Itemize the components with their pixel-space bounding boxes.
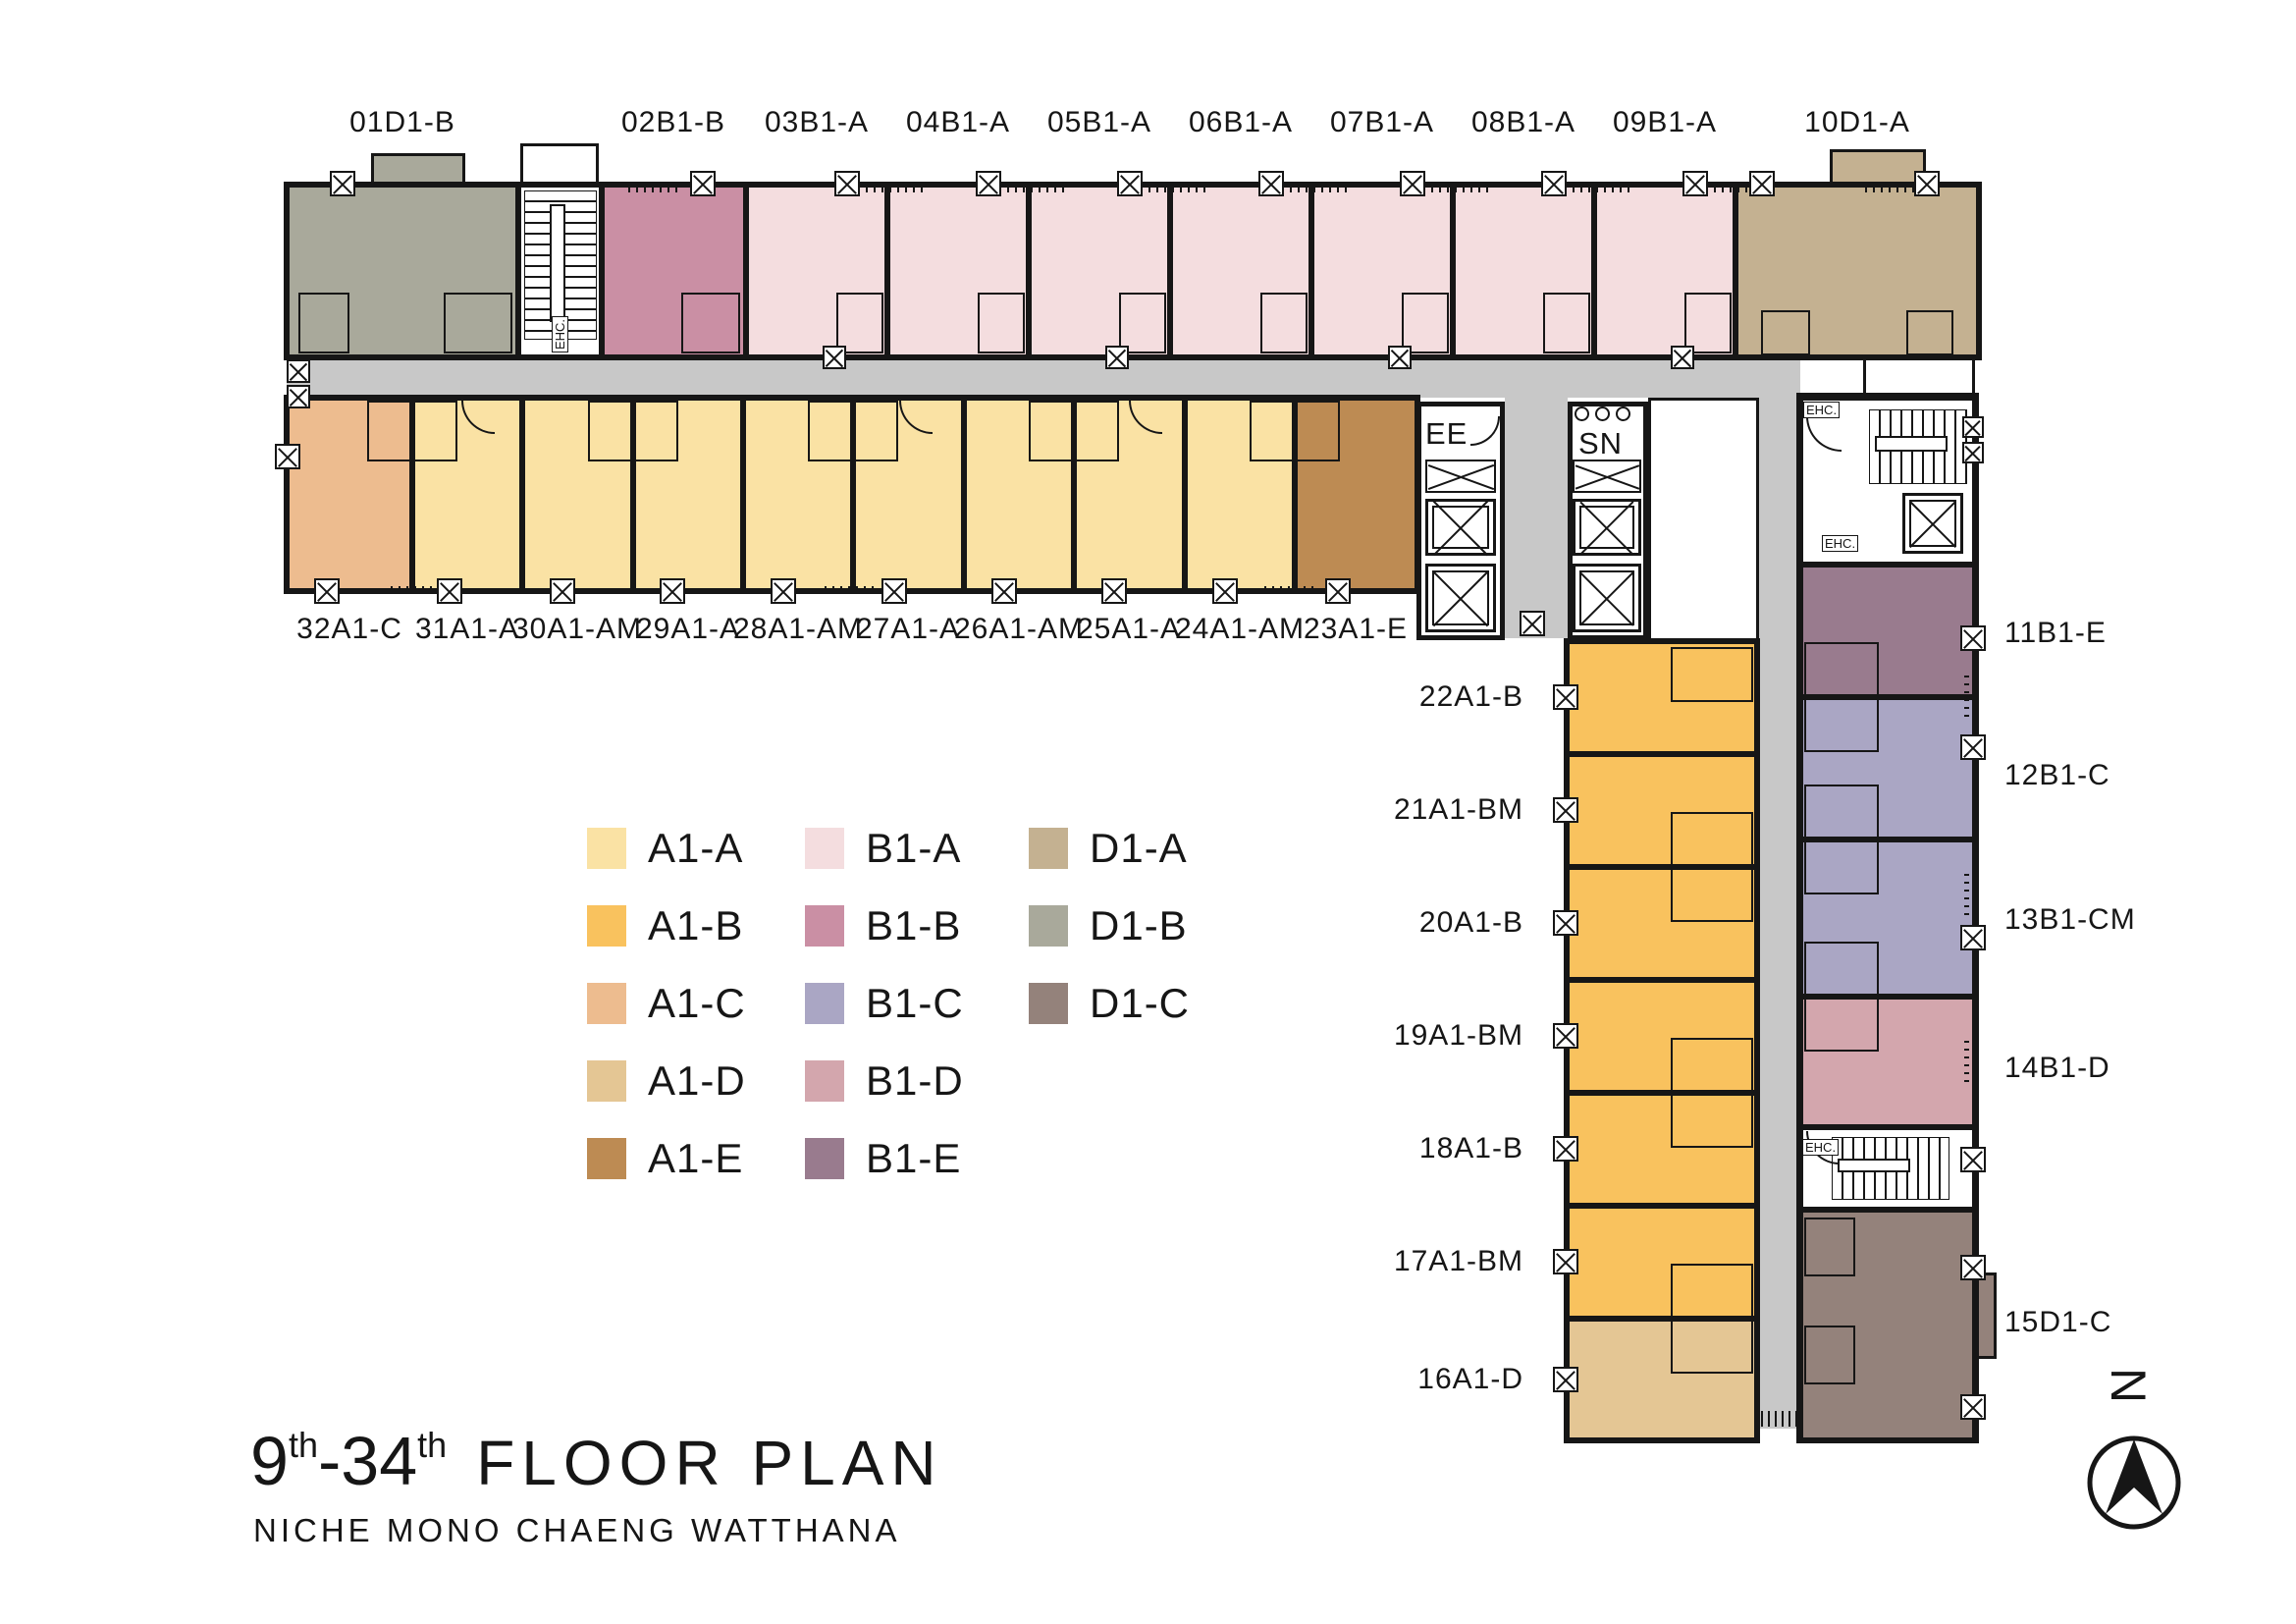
balcony-rail	[1264, 586, 1319, 591]
bathroom-pod	[1260, 293, 1308, 353]
unit-label: 08B1-A	[1471, 106, 1575, 139]
shaft-box-icon	[1962, 416, 1984, 438]
legend-item: B1-E	[805, 1135, 961, 1182]
ordinal-suffix: th	[289, 1425, 318, 1465]
unit-label: 02B1-B	[621, 106, 725, 139]
legend-swatch	[1029, 905, 1068, 947]
project-subtitle: NICHE MONO CHAENG WATTHANA	[253, 1512, 901, 1549]
stair-landing	[1875, 436, 1948, 452]
shaft-box-icon	[1388, 346, 1412, 369]
shaft-box-icon	[1553, 684, 1578, 710]
bathroom-pod	[808, 401, 853, 461]
bathroom-pod	[1250, 401, 1295, 461]
closet-bump	[1830, 149, 1926, 187]
shaft-box-icon	[1553, 1136, 1578, 1162]
bathroom-pod	[1804, 785, 1879, 839]
vent-box-icon	[881, 578, 907, 604]
legend-item: B1-A	[805, 825, 961, 872]
unit-label: 13B1-CM	[2004, 903, 2136, 937]
shaft-box-icon	[823, 346, 846, 369]
bathroom-pod	[1402, 293, 1449, 353]
legend-label: B1-D	[866, 1057, 964, 1105]
shaft-box-icon	[1553, 1249, 1578, 1274]
stair-shaft-bump	[520, 143, 599, 187]
unit-label: 14B1-D	[2004, 1052, 2110, 1085]
unit-label: 05B1-A	[1047, 106, 1151, 139]
ehc-cabinet: EHC.	[1802, 1139, 1839, 1156]
shaft-box-icon	[1960, 1255, 1986, 1280]
vent-box-icon	[1682, 171, 1708, 196]
unit-label: 10D1-A	[1804, 106, 1910, 139]
vent-box-icon	[330, 171, 355, 196]
shaft-box-icon	[1962, 442, 1984, 463]
shaft-box-icon	[1105, 346, 1129, 369]
vent-box-icon	[1117, 171, 1143, 196]
bathroom-pod	[1671, 647, 1753, 702]
legend-item: A1-D	[587, 1057, 746, 1105]
unit-label: 31A1-A	[415, 613, 519, 646]
legend-swatch	[587, 828, 626, 869]
unit-label: 21A1-BM	[1394, 793, 1523, 827]
bathroom-pod	[1804, 942, 1879, 997]
shaft-box-icon	[1960, 925, 1986, 950]
unit-label: 20A1-B	[1419, 906, 1523, 940]
balcony-rail	[1964, 874, 1969, 921]
floor-range-start: 9	[250, 1423, 289, 1499]
vent-box-icon	[690, 171, 716, 196]
bathroom-pod	[1804, 1326, 1855, 1384]
bathroom-pod	[681, 293, 740, 353]
legend-label: B1-A	[866, 825, 961, 872]
legend-item: D1-B	[1029, 902, 1188, 949]
bathroom-pod	[1671, 812, 1753, 867]
shaft-box-icon	[1960, 1394, 1986, 1420]
open-void	[1648, 398, 1759, 641]
legend-swatch	[587, 905, 626, 947]
bathroom-pod	[1906, 310, 1953, 355]
bathroom-pod	[1761, 310, 1810, 355]
corridor-horizontal	[287, 357, 1800, 398]
unit-label: 17A1-BM	[1394, 1245, 1523, 1278]
bathroom-pod	[978, 293, 1025, 353]
unit-label: 19A1-BM	[1394, 1019, 1523, 1053]
ehc-cabinet: EHC.	[552, 316, 568, 352]
bathroom-pod	[412, 401, 457, 461]
legend-swatch	[805, 905, 844, 947]
balcony-rail	[1964, 1041, 1969, 1088]
unit-label: 27A1-A	[856, 613, 960, 646]
stair-landing	[550, 204, 565, 322]
elevator-icon	[1902, 493, 1963, 554]
north-arrow-icon	[2073, 1412, 2195, 1540]
vent-box-icon	[1101, 578, 1127, 604]
legend-swatch	[1029, 828, 1068, 869]
legend-item: D1-C	[1029, 980, 1190, 1027]
legend-label: B1-C	[866, 980, 964, 1027]
floor-plan-canvas: EHC. 01D1-B 02B1-B 03B1-A 04B1-A 05B1-A …	[0, 0, 2296, 1624]
legend-label: A1-C	[648, 980, 746, 1027]
balcony-rail	[1431, 188, 1490, 192]
balcony-rail	[1007, 188, 1066, 192]
floor-range-end: 34	[341, 1423, 417, 1499]
vent-box-icon	[1749, 171, 1775, 196]
unit-label: 25A1-A	[1077, 613, 1181, 646]
unit-label: 26A1-AM	[954, 613, 1084, 646]
shaft-hatch-box	[1573, 460, 1641, 493]
unit-label: 30A1-AM	[512, 613, 642, 646]
bathroom-pod	[1543, 293, 1590, 353]
vent-box-icon	[976, 171, 1001, 196]
unit-bump	[1975, 1272, 1997, 1359]
balcony-rail	[825, 586, 880, 591]
core-label: EE	[1425, 416, 1468, 452]
elevator-icon	[1425, 499, 1496, 556]
unit-label: 12B1-C	[2004, 759, 2110, 792]
vent-box-icon	[1541, 171, 1567, 196]
stair-landing	[1838, 1159, 1910, 1172]
balcony-rail	[1148, 188, 1207, 192]
bathroom-pod	[588, 401, 633, 461]
elevator-lobby-strip	[1505, 357, 1568, 638]
shaft-box-icon	[1960, 1147, 1986, 1172]
legend-swatch	[587, 1138, 626, 1179]
vent-box-icon	[437, 578, 462, 604]
shaft-box-icon	[1553, 1367, 1578, 1392]
unit-label: 03B1-A	[765, 106, 869, 139]
bathroom-pod	[1029, 401, 1074, 461]
unit-label: 09B1-A	[1613, 106, 1717, 139]
legend-item: A1-E	[587, 1135, 743, 1182]
unit-label: 01D1-B	[349, 106, 455, 139]
legend-item: A1-B	[587, 902, 743, 949]
legend-item: B1-D	[805, 1057, 964, 1105]
legend-label: A1-A	[648, 825, 743, 872]
closet-bump	[371, 153, 465, 187]
legend-item: A1-C	[587, 980, 746, 1027]
core-label: SN	[1578, 426, 1623, 461]
shaft-box-icon	[1960, 625, 1986, 651]
unit-label: 04B1-A	[906, 106, 1010, 139]
unit-label: 29A1-A	[636, 613, 740, 646]
balcony-rail	[1964, 676, 1969, 723]
bathroom-pod	[1804, 642, 1879, 697]
ehc-cabinet: EHC.	[1822, 535, 1858, 552]
bathroom-pod	[633, 401, 678, 461]
legend-label: B1-B	[866, 902, 961, 949]
unit-label: 07B1-A	[1330, 106, 1434, 139]
bathroom-pod	[298, 293, 349, 353]
range-dash: -	[318, 1423, 341, 1499]
bathroom-pod	[1671, 1038, 1753, 1093]
balcony-rail	[628, 188, 683, 192]
legend-item: B1-B	[805, 902, 961, 949]
bathroom-pod	[836, 293, 883, 353]
legend-swatch	[587, 983, 626, 1024]
shaft-box-icon	[1553, 797, 1578, 823]
legend-swatch	[805, 828, 844, 869]
vent-circle-icon	[1575, 406, 1589, 421]
legend-label: A1-E	[648, 1135, 743, 1182]
bathroom-pod	[1804, 997, 1879, 1052]
bathroom-pod	[853, 401, 898, 461]
elevator-icon	[1573, 564, 1641, 632]
legend-swatch	[805, 983, 844, 1024]
vent-box-icon	[834, 171, 860, 196]
shaft-hatch-box	[1425, 460, 1496, 493]
corridor-end-ticks	[1761, 1411, 1798, 1427]
unit-label: 24A1-AM	[1175, 613, 1305, 646]
balcony-rail	[1573, 188, 1631, 192]
bathroom-pod	[1671, 1093, 1753, 1148]
bathroom-pod	[1804, 1218, 1855, 1276]
legend-item: A1-A	[587, 825, 743, 872]
unit-label: 22A1-B	[1419, 680, 1523, 714]
bathroom-pod	[367, 401, 412, 461]
vent-box-icon	[1325, 578, 1351, 604]
unit-label: 15D1-C	[2004, 1306, 2111, 1339]
shaft-box-icon	[1520, 611, 1545, 636]
vent-box-icon	[550, 578, 575, 604]
bathroom-pod	[1671, 1264, 1753, 1319]
unit-label: 06B1-A	[1189, 106, 1293, 139]
corridor-vertical	[1759, 357, 1800, 1429]
legend-label: B1-E	[866, 1135, 961, 1182]
vent-box-icon	[1400, 171, 1425, 196]
legend-swatch	[805, 1060, 844, 1102]
bathroom-pod	[1671, 1319, 1753, 1374]
page-title: 9th-34thFLOOR PLAN	[250, 1422, 943, 1500]
stair-shaft-bump	[1863, 357, 1975, 401]
vent-box-icon	[1212, 578, 1238, 604]
elevator-icon	[1573, 499, 1641, 556]
title-main: FLOOR PLAN	[476, 1428, 942, 1498]
legend-label: D1-C	[1090, 980, 1190, 1027]
ordinal-suffix: th	[417, 1425, 447, 1465]
unit-label: 16A1-D	[1417, 1363, 1523, 1396]
north-letter: N	[2100, 1368, 2157, 1403]
bathroom-pod	[1295, 401, 1340, 461]
balcony-rail	[1865, 188, 1920, 192]
legend-swatch	[587, 1060, 626, 1102]
legend-item: D1-A	[1029, 825, 1188, 872]
shaft-box-icon	[1671, 346, 1694, 369]
legend-swatch	[805, 1138, 844, 1179]
vent-box-icon	[991, 578, 1017, 604]
shaft-box-icon	[1960, 734, 1986, 760]
vent-box-icon	[1258, 171, 1284, 196]
shaft-box-icon	[287, 359, 310, 383]
unit-label: 18A1-B	[1419, 1132, 1523, 1165]
unit-label: 11B1-E	[2004, 617, 2107, 650]
balcony-rail	[866, 188, 925, 192]
shaft-box-icon	[275, 444, 300, 469]
legend-label: A1-D	[648, 1057, 746, 1105]
bathroom-pod	[1804, 697, 1879, 752]
legend-swatch	[1029, 983, 1068, 1024]
vent-circle-icon	[1595, 406, 1610, 421]
vent-box-icon	[771, 578, 796, 604]
legend-label: D1-A	[1090, 825, 1188, 872]
elevator-icon	[1425, 564, 1496, 632]
balcony-rail	[1290, 188, 1349, 192]
vent-circle-icon	[1616, 406, 1630, 421]
shaft-box-icon	[1553, 910, 1578, 936]
vent-box-icon	[660, 578, 685, 604]
vent-box-icon	[1914, 171, 1940, 196]
bathroom-pod	[1671, 867, 1753, 922]
bathroom-pod	[1684, 293, 1732, 353]
legend-label: D1-B	[1090, 902, 1188, 949]
unit-label: 32A1-C	[296, 613, 402, 646]
legend-label: A1-B	[648, 902, 743, 949]
shaft-box-icon	[1553, 1023, 1578, 1049]
unit-label: 23A1-E	[1304, 613, 1408, 646]
bathroom-pod	[444, 293, 512, 353]
ehc-cabinet: EHC.	[1803, 402, 1840, 418]
bathroom-pod	[1074, 401, 1119, 461]
bathroom-pod	[1804, 839, 1879, 894]
vent-box-icon	[314, 578, 340, 604]
bathroom-pod	[1119, 293, 1166, 353]
shaft-box-icon	[287, 385, 310, 408]
unit-label: 28A1-AM	[733, 613, 863, 646]
legend-item: B1-C	[805, 980, 964, 1027]
